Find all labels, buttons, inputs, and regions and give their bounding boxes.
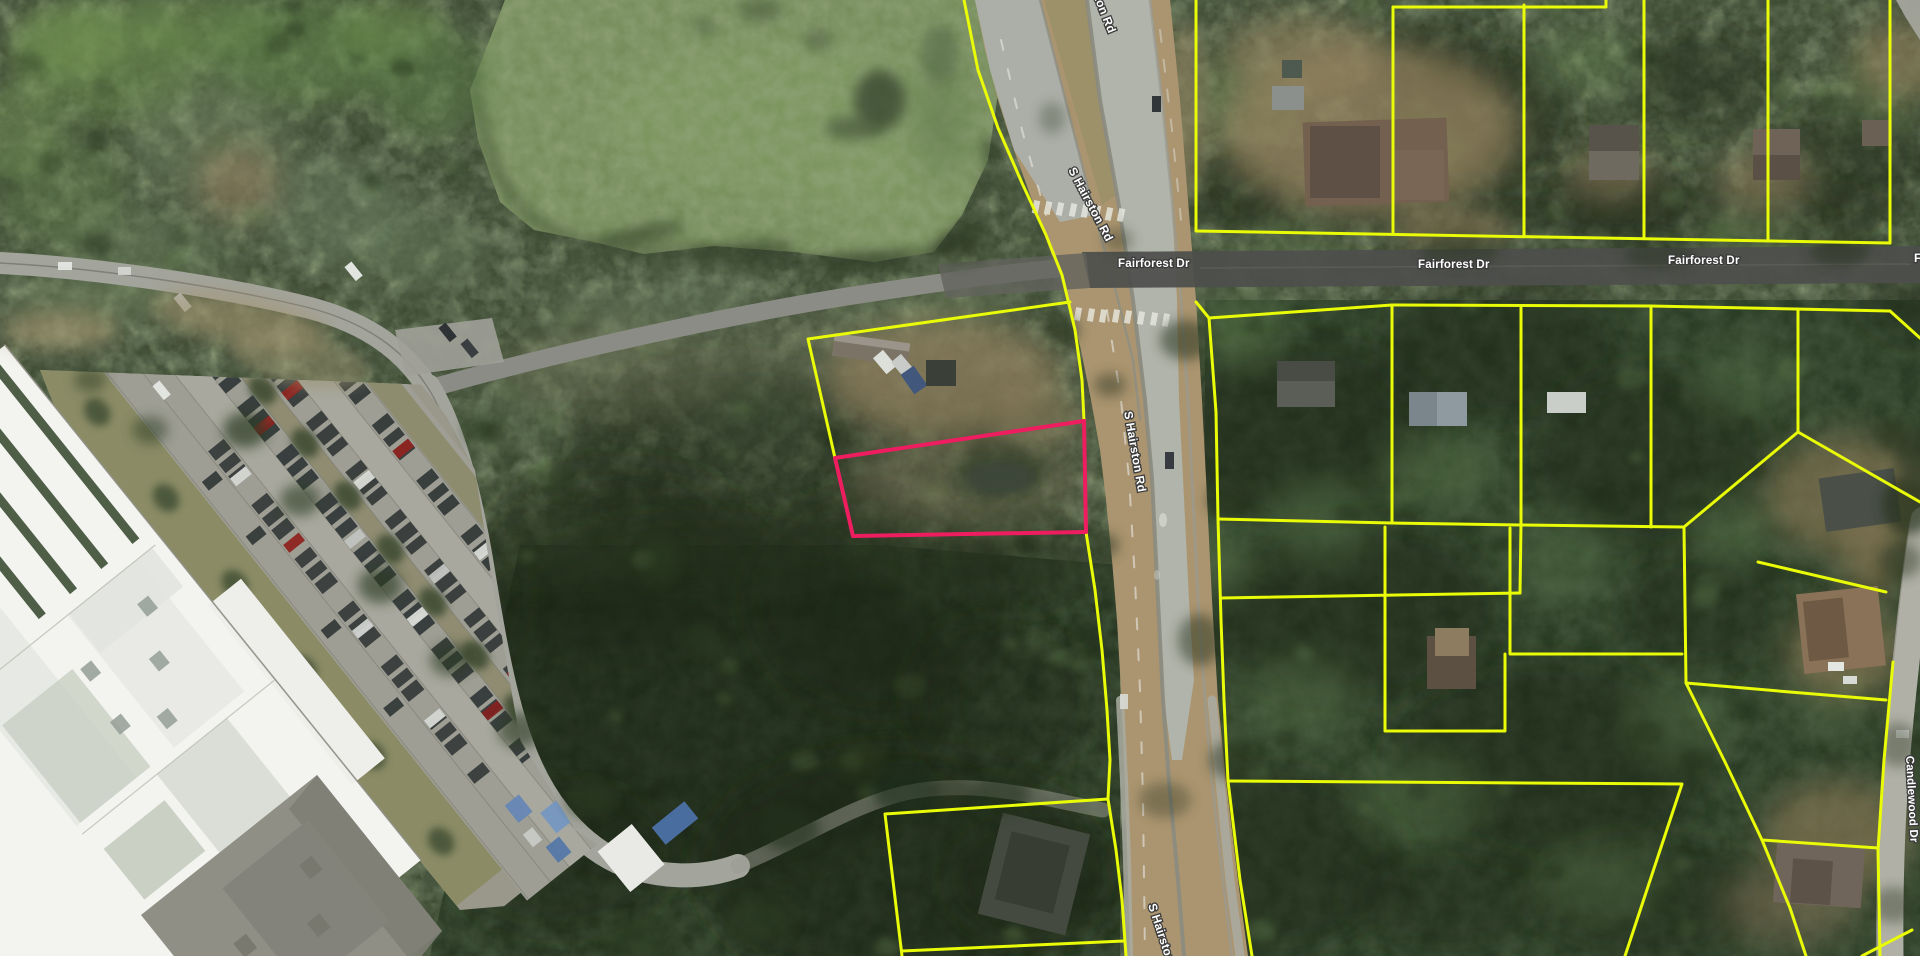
svg-text:Fairforest Dr: Fairforest Dr <box>1668 255 1740 267</box>
svg-text:Fairforest Dr: Fairforest Dr <box>1118 258 1190 270</box>
svg-text:F: F <box>1914 251 1920 265</box>
svg-text:Fairforest Dr: Fairforest Dr <box>1418 259 1490 271</box>
